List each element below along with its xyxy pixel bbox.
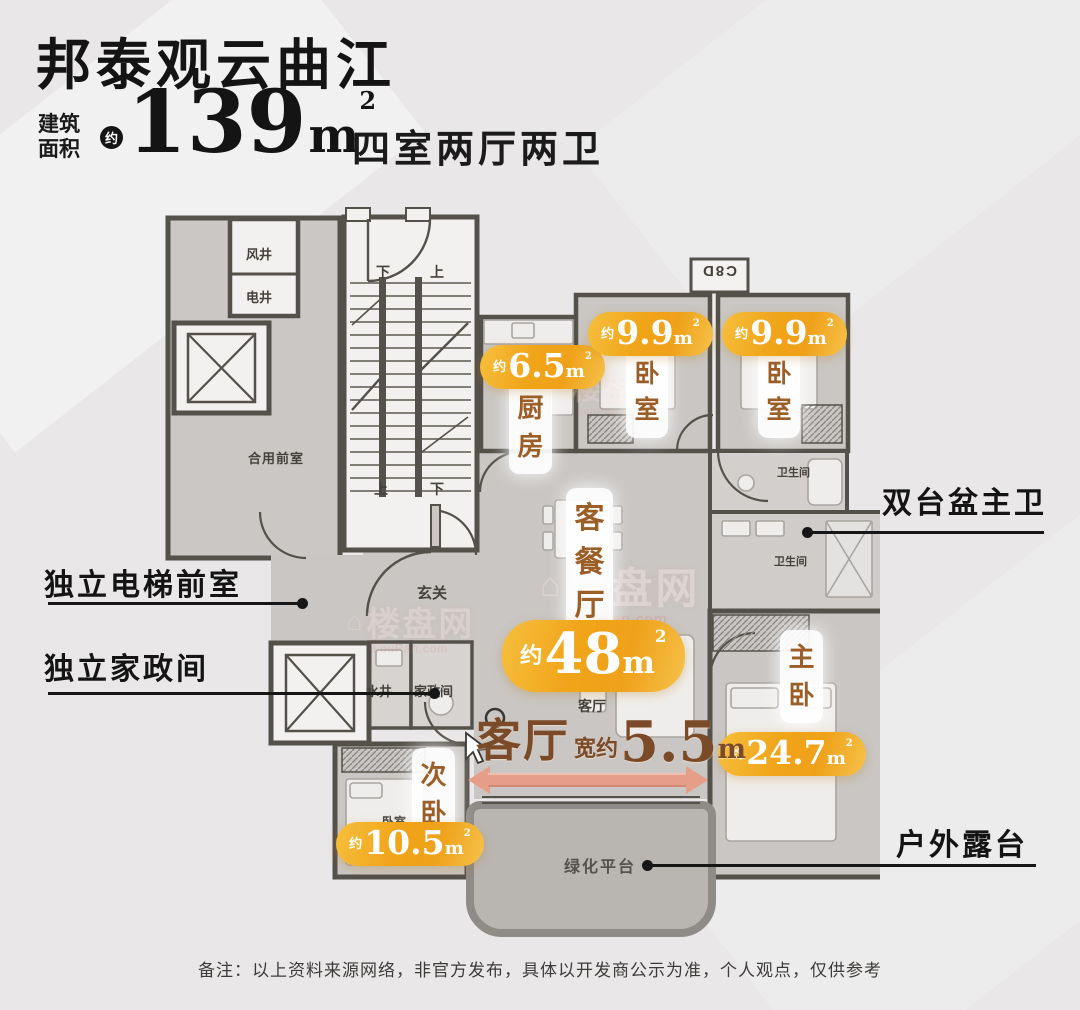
poster-canvas: 邦泰观云曲江 建筑 面积 约 139m2 四室两厅两卫	[0, 0, 1080, 1010]
room-elevator-frontroom	[271, 555, 363, 643]
badge-bedroom2-area: 约9.9m2	[722, 312, 847, 356]
label-wind-shaft: 风井	[246, 244, 272, 263]
callout-dot	[429, 688, 440, 699]
callout-line-elevator-lobby	[48, 602, 304, 605]
footer-disclaimer: 备注：以上资料来源网络，非官方发布，具体以开发商公示为准，个人观点，仅供参考	[40, 956, 1040, 981]
callout-elevator-lobby: 独立电梯前室	[44, 560, 242, 604]
dimension-unit: m	[717, 734, 746, 765]
callout-dot	[642, 860, 653, 871]
area-label-line2: 面积	[38, 137, 80, 162]
label-stair-down: 下	[376, 262, 390, 282]
callout-master-bath: 双台盆主卫	[882, 478, 1047, 522]
area-superscript: 2	[359, 86, 376, 115]
arrow-head-left-icon	[468, 766, 490, 794]
arrow-head-right-icon	[686, 766, 708, 794]
callout-line-terrace	[646, 864, 1036, 867]
approx-badge: 约	[100, 126, 123, 149]
label-electric-shaft: 电井	[246, 287, 272, 306]
callout-terrace: 户外露台	[896, 820, 1028, 864]
label-stair-up: 上	[374, 479, 388, 499]
label-stair-up: 上	[430, 262, 444, 282]
pill-dining-living: 客餐厅	[566, 488, 613, 637]
callout-housekeeping: 独立家政间	[44, 644, 209, 688]
badge-second-bedroom-area: 约10.5m2	[336, 822, 484, 866]
area-label: 建筑 面积	[38, 112, 80, 162]
label-bathroom-1: 卫生间	[777, 464, 810, 480]
callout-dot	[802, 527, 813, 538]
dimension-value: 5.5	[620, 716, 717, 769]
dimension-room: 客厅	[476, 704, 570, 769]
pill-kitchen: 厨房	[509, 381, 552, 474]
dimension-arrow	[468, 766, 708, 794]
living-width-dimension: 客厅宽约5.5m	[476, 704, 746, 769]
label-shared-lobby: 合用前室	[248, 448, 304, 467]
pill-bedroom-2: 卧室	[758, 347, 800, 438]
callout-dot	[297, 598, 308, 609]
pill-master-bedroom: 主卧	[780, 630, 823, 723]
label-bathroom-2: 卫生间	[774, 553, 807, 569]
label-ac-unit: C8D	[692, 262, 746, 279]
area-value: 139	[127, 80, 307, 166]
elevator-1	[174, 323, 269, 413]
layout-description: 四室两厅两卫	[352, 118, 604, 173]
label-foyer: 玄关	[417, 582, 447, 603]
balcony-slider	[482, 797, 700, 803]
badge-bedroom1-area: 约9.9m2	[588, 312, 713, 356]
dimension-prefix: 宽约	[574, 731, 618, 763]
badge-living-area: 约48m2	[502, 620, 685, 692]
area-label-line1: 建筑	[38, 112, 80, 137]
callout-line-master-bath	[806, 531, 1044, 534]
pill-bedroom-1: 卧室	[626, 347, 668, 438]
callout-line-housekeeping	[48, 692, 436, 695]
arrow-body	[488, 773, 688, 787]
building-area: 139m2	[127, 80, 376, 166]
label-green-platform: 绿化平台	[564, 853, 636, 877]
label-water-shaft: 水井	[366, 681, 392, 700]
label-stair-down: 下	[430, 479, 444, 499]
badge-kitchen-area: 约6.5m2	[480, 345, 605, 389]
